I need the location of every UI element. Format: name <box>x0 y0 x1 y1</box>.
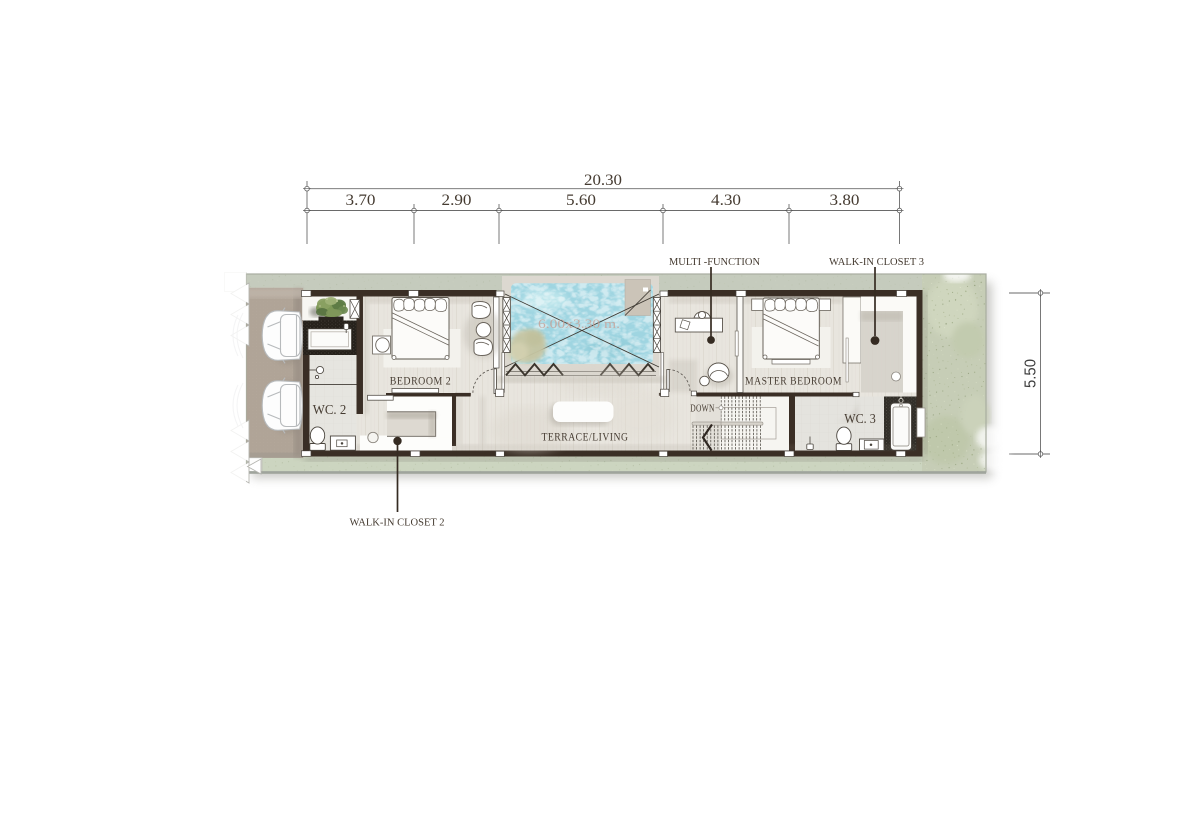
svg-text:6.00x3.30 m.: 6.00x3.30 m. <box>538 317 620 331</box>
svg-text:MASTER BEDROOM: MASTER BEDROOM <box>745 375 842 388</box>
svg-text:WALK-IN CLOSET 2: WALK-IN CLOSET 2 <box>350 517 445 529</box>
svg-text:DOWN: DOWN <box>690 404 715 415</box>
svg-text:5.60: 5.60 <box>566 192 596 209</box>
svg-text:3.70: 3.70 <box>346 192 376 209</box>
svg-text:3.80: 3.80 <box>830 192 860 209</box>
svg-text:20.30: 20.30 <box>584 172 622 189</box>
svg-text:WC. 2: WC. 2 <box>313 403 347 418</box>
svg-text:5.50: 5.50 <box>1023 359 1040 388</box>
svg-text:MULTI -FUNCTION: MULTI -FUNCTION <box>669 256 760 268</box>
svg-text:TERRACE/LIVING: TERRACE/LIVING <box>542 431 629 444</box>
svg-text:2.90: 2.90 <box>442 192 472 209</box>
svg-text:4.30: 4.30 <box>711 192 741 209</box>
svg-text:BEDROOM 2: BEDROOM 2 <box>390 375 452 388</box>
svg-text:WC. 3: WC. 3 <box>844 412 876 427</box>
svg-text:WALK-IN CLOSET 3: WALK-IN CLOSET 3 <box>829 256 924 268</box>
